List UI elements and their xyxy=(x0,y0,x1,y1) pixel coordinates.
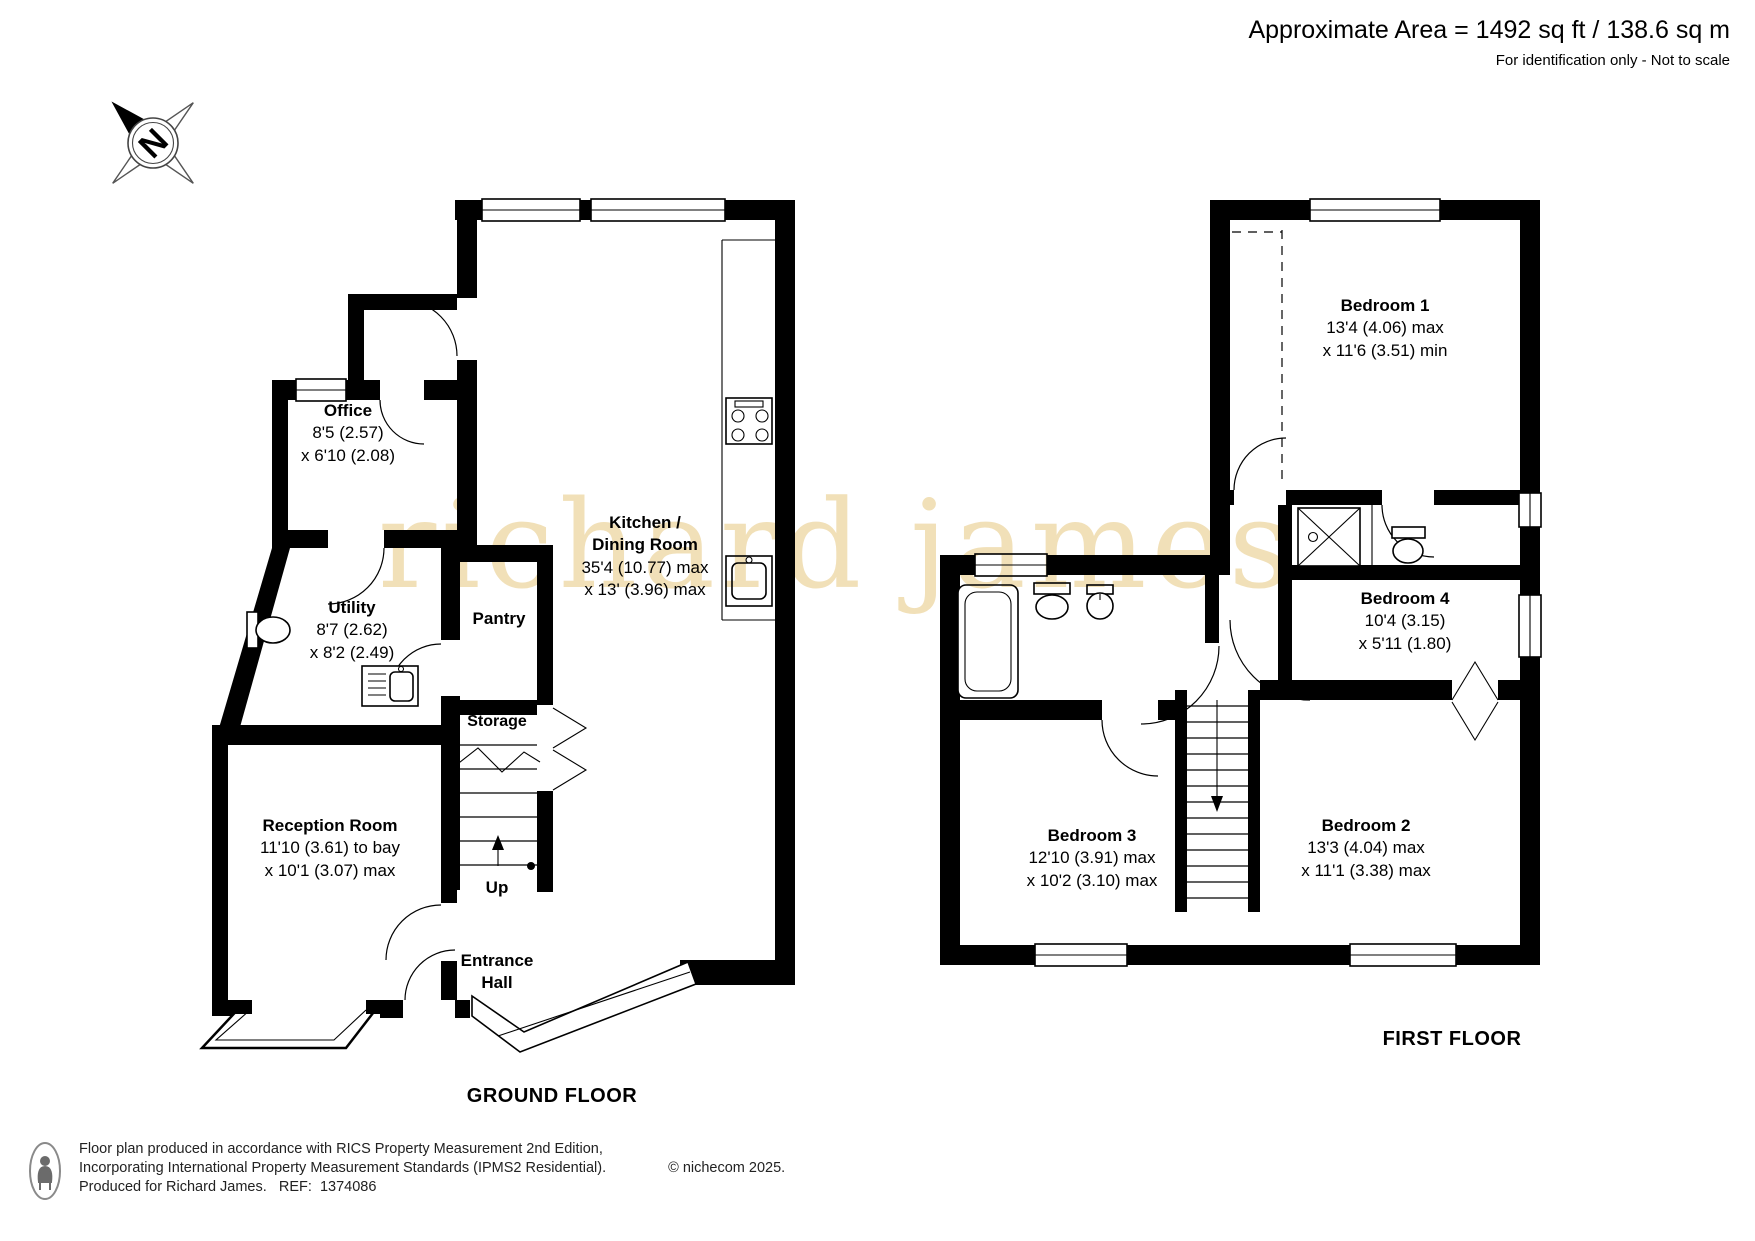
reception-dim-1: 11'10 (3.61) to bay xyxy=(260,837,400,859)
bedroom1-dim-2: x 11'6 (3.51) min xyxy=(1323,340,1448,362)
ensuite-fixtures xyxy=(1298,505,1425,566)
person-badge-icon xyxy=(26,1140,64,1202)
bedroom1-label: Bedroom 1 13'4 (4.06) max x 11'6 (3.51) … xyxy=(1323,295,1448,362)
office-label: Office 8'5 (2.57) x 6'10 (2.08) xyxy=(301,400,395,467)
entrance-hall-label: Entrance Hall xyxy=(461,950,534,995)
restricted-height-dashed-lines xyxy=(1232,230,1282,486)
footer-copyright: © nichecom 2025. xyxy=(668,1159,785,1178)
bedroom2-label: Bedroom 2 13'3 (4.04) max x 11'1 (3.38) … xyxy=(1301,815,1431,882)
storage-label: Storage xyxy=(467,711,527,732)
office-dim-1: 8'5 (2.57) xyxy=(301,422,395,444)
footer-line-2: Incorporating International Property Mea… xyxy=(79,1159,785,1178)
reception-dim-2: x 10'1 (3.07) max xyxy=(260,860,400,882)
bedroom1-dim-1: 13'4 (4.06) max xyxy=(1323,317,1448,339)
footer-line-2-text: Incorporating International Property Mea… xyxy=(79,1159,606,1178)
office-dim-2: x 6'10 (2.08) xyxy=(301,445,395,467)
ground-floor-stairs xyxy=(455,745,540,870)
compass-rose-icon: N xyxy=(72,62,233,223)
ensuite-toilet-icon xyxy=(1392,527,1425,563)
toilet-icon xyxy=(247,612,290,648)
bedroom2-dim-2: x 11'1 (3.38) max xyxy=(1301,860,1431,882)
bedroom3-dim-1: 12'10 (3.91) max xyxy=(1027,847,1158,869)
floorplan-drawing: N xyxy=(0,0,1755,1241)
bedroom2-dim-1: 13'3 (4.04) max xyxy=(1301,837,1431,859)
bedroom3-name: Bedroom 3 xyxy=(1027,825,1158,847)
header: Approximate Area = 1492 sq ft / 138.6 sq… xyxy=(1248,16,1730,69)
bedroom4-dim-1: 10'4 (3.15) xyxy=(1359,610,1452,632)
first-floor-title: FIRST FLOOR xyxy=(1383,1028,1522,1051)
bedroom3-label: Bedroom 3 12'10 (3.91) max x 10'2 (3.10)… xyxy=(1027,825,1158,892)
footer-line-3: Produced for Richard James. REF: 1374086 xyxy=(79,1178,785,1197)
entrance-name-2: Hall xyxy=(461,972,534,994)
up-text: Up xyxy=(486,877,509,899)
up-label: Up xyxy=(486,877,509,899)
utility-sink-icon xyxy=(362,666,418,706)
stove-icon xyxy=(726,398,772,444)
shower-tray-icon xyxy=(1298,508,1360,566)
bedroom1-name: Bedroom 1 xyxy=(1323,295,1448,317)
bedroom4-dim-2: x 5'11 (1.80) xyxy=(1359,633,1452,655)
bedroom2-name: Bedroom 2 xyxy=(1301,815,1431,837)
first-floor-stairs xyxy=(1187,700,1248,898)
reception-label: Reception Room 11'10 (3.61) to bay x 10'… xyxy=(260,815,400,882)
utility-dim-1: 8'7 (2.62) xyxy=(310,619,395,641)
footer-line-1: Floor plan produced in accordance with R… xyxy=(79,1140,785,1159)
reception-name: Reception Room xyxy=(260,815,400,837)
bedroom4-name: Bedroom 4 xyxy=(1359,588,1452,610)
office-name: Office xyxy=(301,400,395,422)
floorplan-page: N xyxy=(0,0,1755,1241)
footer: Floor plan produced in accordance with R… xyxy=(26,1140,785,1202)
storage-name: Storage xyxy=(467,711,527,732)
ground-floor-title: GROUND FLOOR xyxy=(467,1085,637,1108)
richard-james-watermark: richard james xyxy=(378,484,1296,606)
utility-dim-2: x 8'2 (2.49) xyxy=(310,642,395,664)
approximate-area-text: Approximate Area = 1492 sq ft / 138.6 sq… xyxy=(1248,16,1730,45)
bedroom3-dim-2: x 10'2 (3.10) max xyxy=(1027,870,1158,892)
entrance-name-1: Entrance xyxy=(461,950,534,972)
bedroom4-label: Bedroom 4 10'4 (3.15) x 5'11 (1.80) xyxy=(1359,588,1452,655)
not-to-scale-note: For identification only - Not to scale xyxy=(1248,52,1730,69)
footer-text: Floor plan produced in accordance with R… xyxy=(79,1140,785,1197)
